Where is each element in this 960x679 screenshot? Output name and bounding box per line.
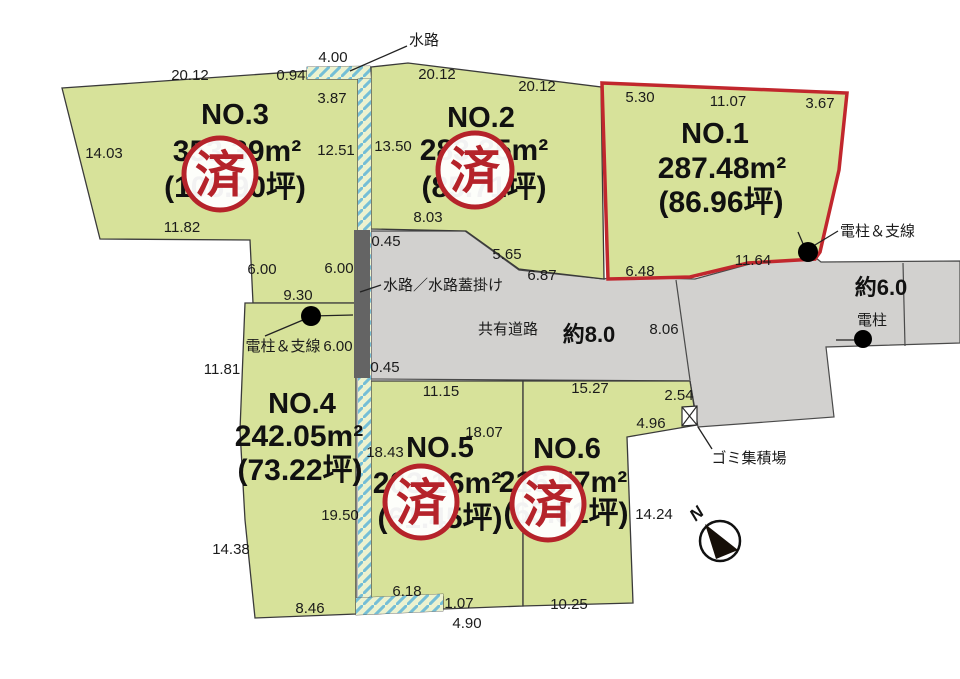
garbage-station-label: ゴミ集積場 <box>711 449 786 467</box>
site-plan-map: N 4.00 0.94 20.12 3.87 14.03 12.51 11.82… <box>0 0 960 679</box>
dim-label: 3.67 <box>805 95 834 112</box>
dim-label: 13.50 <box>374 138 412 155</box>
covered-water-channel-bar <box>354 230 370 378</box>
dim-label: 14.24 <box>635 506 673 523</box>
dim-label: 11.07 <box>710 93 746 110</box>
sold-stamp-no6: 済 <box>512 468 584 540</box>
sold-stamp-no2: 済 <box>438 133 512 207</box>
road-width-6-label: 約6.0 <box>855 275 908 300</box>
dim-label: 11.81 <box>204 361 240 378</box>
dim-label: 15.27 <box>571 380 609 397</box>
plot-no4-area: 242.05m² <box>235 420 363 453</box>
garbage-station-marker <box>682 406 697 426</box>
plot-no4-tsubo: (73.22坪) <box>237 454 362 487</box>
dim-label: 14.38 <box>212 541 250 558</box>
sold-stamp-no3: 済 <box>184 138 256 210</box>
pole-dot <box>854 330 872 348</box>
sold-stamp-text: 済 <box>396 475 447 531</box>
plot-no5-title: NO.5 <box>406 432 474 464</box>
dim-label: 1.07 <box>444 595 473 612</box>
dim-label: 6.87 <box>527 267 556 284</box>
dim-label: 6.00 <box>247 261 276 278</box>
waterway-covered-label: 水路／水路蓋掛け <box>383 277 503 294</box>
pole-dot <box>301 306 321 326</box>
pole-wire-right-label: 電柱＆支線 <box>840 223 915 240</box>
dim-label: 8.06 <box>649 321 678 338</box>
dim-label: 4.96 <box>636 415 665 432</box>
plot-no1-title: NO.1 <box>681 118 749 150</box>
north-label: N <box>686 502 708 525</box>
road-width-8-label: 約8.0 <box>563 322 616 347</box>
dim-label: 20.12 <box>171 67 209 84</box>
dim-label: 11.64 <box>735 252 771 269</box>
site-plan-svg: N 4.00 0.94 20.12 3.87 14.03 12.51 11.82… <box>0 0 960 679</box>
plot-no6-title: NO.6 <box>533 433 601 465</box>
plot-no3-title: NO.3 <box>201 99 269 131</box>
sold-stamp-text: 済 <box>450 143 501 199</box>
dim-label: 10.25 <box>550 596 588 613</box>
dim-label: 2.54 <box>664 387 693 404</box>
shared-road-label: 共有道路 <box>478 321 538 338</box>
dim-label: 6.18 <box>392 583 421 600</box>
plot-no1-area: 287.48m² <box>658 152 786 185</box>
pole-wire-left-label: 電柱＆支線 <box>245 338 320 355</box>
dim-label: 20.12 <box>418 66 456 83</box>
plot-no2-title: NO.2 <box>447 102 515 134</box>
dim-label: 11.15 <box>423 383 459 400</box>
dim-label: 8.46 <box>295 600 324 617</box>
plot-no1-tsubo: (86.96坪) <box>658 186 783 219</box>
plot-no4-title: NO.4 <box>268 388 336 420</box>
dim-label: 5.65 <box>492 246 521 263</box>
dim-label: 0.45 <box>371 233 400 250</box>
dim-label: 6.00 <box>323 338 352 355</box>
dim-label: 4.90 <box>452 615 481 632</box>
dim-label: 19.50 <box>321 507 359 524</box>
dim-label: 6.48 <box>625 263 654 280</box>
dim-label: 0.45 <box>370 359 399 376</box>
dim-label: 8.03 <box>413 209 442 226</box>
dim-label: 3.87 <box>317 90 346 107</box>
dim-label: 18.43 <box>366 444 404 461</box>
dim-label: 5.30 <box>625 89 654 106</box>
dim-label: 12.51 <box>317 142 355 159</box>
pole-dot <box>798 242 818 262</box>
north-arrow: N <box>686 502 740 561</box>
dim-label: 20.12 <box>518 78 556 95</box>
pole-label: 電柱 <box>857 312 887 329</box>
waterway-label: 水路 <box>409 32 439 49</box>
dim-label: 4.00 <box>318 49 347 66</box>
sold-stamp-text: 済 <box>523 477 574 533</box>
sold-stamp-text: 済 <box>195 147 246 203</box>
sold-stamp-no5: 済 <box>385 466 457 538</box>
dim-label: 0.94 <box>276 67 305 84</box>
dim-label: 14.03 <box>85 145 123 162</box>
dim-label: 6.00 <box>324 260 353 277</box>
dim-label: 9.30 <box>283 287 312 304</box>
dim-label: 11.82 <box>164 219 200 236</box>
